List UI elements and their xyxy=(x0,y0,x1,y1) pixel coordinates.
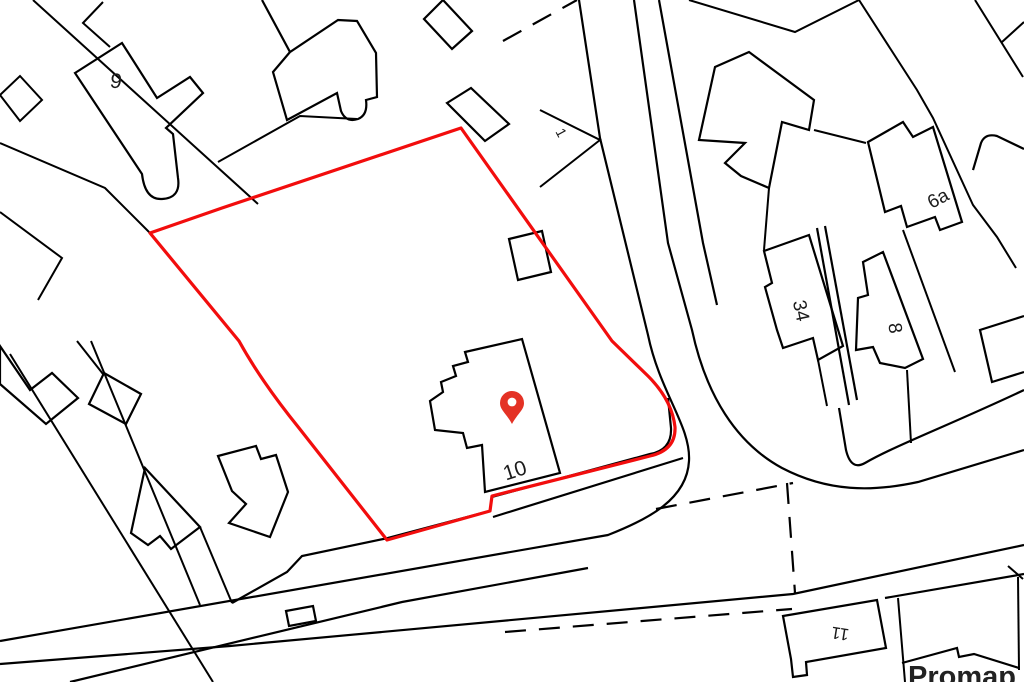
building-mid-square xyxy=(131,468,200,549)
shed-in-site xyxy=(509,231,551,280)
fence-left-3 xyxy=(91,341,200,605)
fence-cross-south xyxy=(764,188,769,250)
building-9 xyxy=(75,43,203,199)
dashed-lines xyxy=(503,0,795,632)
promap-watermark: Promap xyxy=(908,661,1016,682)
map-label-8: 8 xyxy=(883,322,905,335)
pin-body xyxy=(500,391,524,424)
location-pin-icon xyxy=(500,391,524,424)
frontage-south-left xyxy=(70,568,588,682)
pin-hole xyxy=(508,398,517,407)
dashed-bottom-right xyxy=(505,609,792,632)
building-top-left-corner xyxy=(83,2,110,47)
fence-br-1 xyxy=(1018,577,1019,670)
fence-right-edge xyxy=(975,0,1024,77)
building-left-edge-small xyxy=(0,76,42,121)
site-boundary xyxy=(150,128,675,540)
site-plan-map: 916a3481011 Promap xyxy=(0,0,1024,682)
map-label-9: 9 xyxy=(109,69,124,93)
building-right-hook xyxy=(973,135,1024,170)
building-mid-stepped xyxy=(218,446,288,537)
fence-parcel-1 xyxy=(540,110,600,187)
frontage-south-right xyxy=(885,574,1024,598)
fence-left-2 xyxy=(0,212,62,300)
road-south-kerb xyxy=(0,545,1024,664)
fence-nw-long xyxy=(33,0,258,204)
fence-left-1 xyxy=(0,143,150,233)
road-west-kerb xyxy=(0,0,689,641)
map-labels: 916a3481011 xyxy=(109,69,954,644)
building-top-centre xyxy=(262,0,377,120)
dashed-junction xyxy=(656,483,793,509)
building-6a xyxy=(868,122,962,230)
road-north-frontage-east xyxy=(839,390,1024,465)
fence-v-top xyxy=(689,0,859,32)
building-right-lower xyxy=(980,316,1024,382)
building-outlines xyxy=(0,0,1024,682)
building-10 xyxy=(430,339,560,492)
fence-plot-divider xyxy=(898,598,905,682)
fence-8-frontage xyxy=(907,370,911,443)
map-label-6a: 6a xyxy=(924,185,953,214)
building-top-right-cross xyxy=(699,52,814,188)
site-plan-page: 916a3481011 Promap xyxy=(0,0,1024,682)
dashed-vertical xyxy=(787,483,795,593)
map-label-11: 11 xyxy=(830,623,850,645)
dashed-top xyxy=(503,0,577,41)
fence-ne-cross xyxy=(218,116,357,162)
fence-cross-east xyxy=(814,130,866,143)
fence-34-frontage xyxy=(818,360,827,406)
fence-diag-long xyxy=(10,354,213,682)
fence-east-of-8 xyxy=(903,230,955,372)
driveway-line-b xyxy=(825,226,857,400)
map-label-34: 34 xyxy=(788,298,813,323)
building-top-cut xyxy=(424,0,472,49)
map-label-1: 1 xyxy=(553,125,571,140)
building-1 xyxy=(447,88,509,141)
fence-left-4 xyxy=(77,341,103,374)
fence-to-kerb xyxy=(200,527,232,603)
building-8 xyxy=(856,252,923,368)
road-east-fence xyxy=(659,0,717,305)
